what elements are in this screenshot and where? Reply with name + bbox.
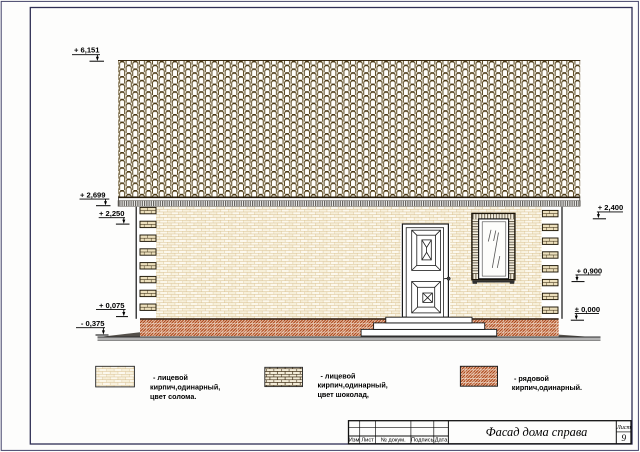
svg-text:+ 2,250: + 2,250 bbox=[99, 209, 125, 218]
svg-text:+ 6,151: + 6,151 bbox=[74, 46, 100, 55]
svg-text:цвет солома.: цвет солома. bbox=[150, 392, 196, 401]
svg-text:кирпич,одинарный,: кирпич,одинарный, bbox=[150, 383, 220, 392]
svg-text:+ 0,900: + 0,900 bbox=[577, 266, 603, 275]
svg-text:+ 0,075: + 0,075 bbox=[99, 301, 125, 310]
svg-text:- рядовой: - рядовой bbox=[514, 374, 549, 383]
svg-text:Лист: Лист bbox=[361, 438, 374, 444]
svg-text:№ докум.: № докум. bbox=[381, 438, 406, 444]
svg-text:- лицевой: - лицевой bbox=[321, 371, 356, 380]
svg-text:- 0,375: - 0,375 bbox=[81, 319, 105, 328]
svg-text:кирпич,одинарный,: кирпич,одинарный, bbox=[318, 381, 388, 390]
svg-text:± 0,000: ± 0,000 bbox=[575, 305, 600, 314]
svg-text:Подпись: Подпись bbox=[411, 438, 434, 444]
svg-text:+ 2,699: + 2,699 bbox=[80, 190, 106, 199]
svg-text:9: 9 bbox=[621, 434, 626, 444]
svg-text:Фасад дома справа: Фасад дома справа bbox=[486, 425, 588, 439]
svg-text:- лицевой: - лицевой bbox=[153, 373, 188, 382]
svg-text:+ 2,400: + 2,400 bbox=[598, 203, 624, 212]
svg-text:Дата: Дата bbox=[435, 438, 448, 444]
svg-text:Изм: Изм bbox=[349, 438, 360, 444]
svg-text:кирпич,одинарный.: кирпич,одинарный. bbox=[512, 383, 582, 392]
svg-text:цвет шоколад,: цвет шоколад, bbox=[318, 390, 369, 399]
svg-text:Лист: Лист bbox=[616, 425, 632, 431]
